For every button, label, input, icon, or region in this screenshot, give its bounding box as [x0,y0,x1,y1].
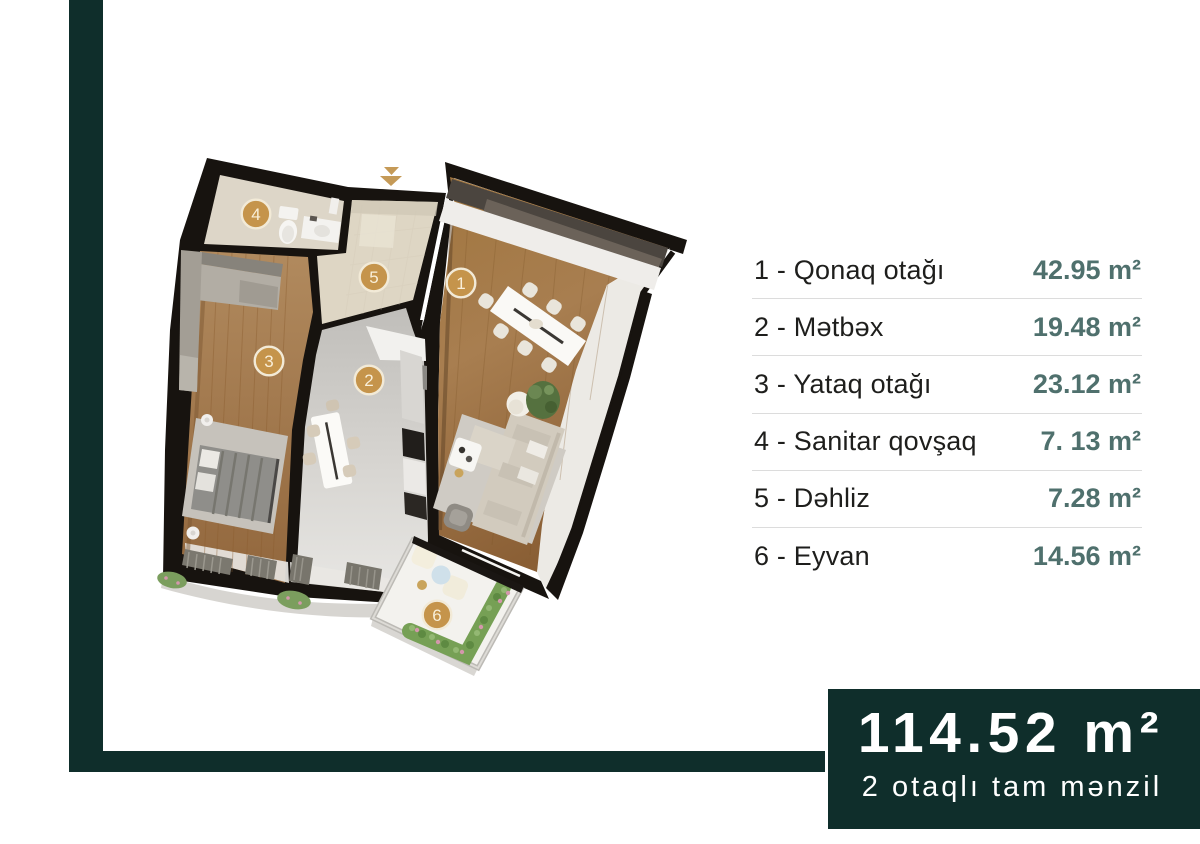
svg-text:2: 2 [364,371,373,390]
svg-text:6: 6 [432,606,441,625]
svg-text:5: 5 [369,268,378,287]
svg-text:4: 4 [251,205,260,224]
svg-text:1: 1 [456,274,465,293]
svg-text:3: 3 [264,352,273,371]
